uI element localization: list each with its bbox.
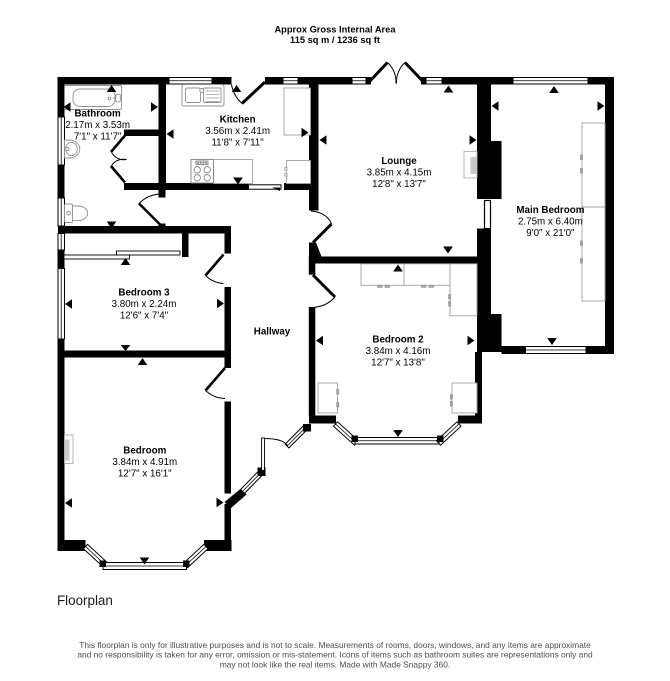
svg-text:Approx Gross Internal Area: Approx Gross Internal Area — [274, 24, 396, 34]
svg-text:9'0" x 21'0": 9'0" x 21'0" — [526, 228, 575, 239]
svg-text:12'8" x 13'7": 12'8" x 13'7" — [372, 179, 426, 190]
svg-text:2.75m x 6.40m: 2.75m x 6.40m — [518, 216, 583, 227]
svg-text:Kitchen: Kitchen — [220, 115, 256, 126]
svg-text:Lounge: Lounge — [381, 156, 417, 167]
svg-text:3.80m x 2.24m: 3.80m x 2.24m — [112, 299, 177, 310]
svg-text:Main Bedroom: Main Bedroom — [516, 205, 584, 216]
svg-text:12'7" x 13'8": 12'7" x 13'8" — [371, 358, 425, 369]
svg-text:and no responsibility is taken: and no responsibility is taken for any e… — [77, 650, 593, 660]
svg-text:3.85m x 4.15m: 3.85m x 4.15m — [367, 168, 432, 179]
svg-text:12'6" x 7'4": 12'6" x 7'4" — [120, 311, 169, 322]
svg-text:Floorplan: Floorplan — [57, 593, 113, 608]
svg-text:2.17m x 3.53m: 2.17m x 3.53m — [65, 120, 130, 131]
svg-text:3.84m x 4.16m: 3.84m x 4.16m — [366, 346, 431, 357]
svg-text:Hallway: Hallway — [254, 327, 291, 338]
svg-text:Bedroom 2: Bedroom 2 — [372, 335, 424, 346]
svg-text:Bedroom 3: Bedroom 3 — [118, 288, 170, 299]
svg-text:Bedroom: Bedroom — [123, 446, 166, 457]
svg-text:3.56m x 2.41m: 3.56m x 2.41m — [205, 126, 270, 137]
svg-text:may not look like the real ite: may not look like the real items. Made w… — [220, 659, 450, 669]
svg-text:115 sq m / 1236 sq ft: 115 sq m / 1236 sq ft — [290, 35, 380, 45]
svg-text:Bathroom: Bathroom — [74, 109, 121, 120]
svg-text:12'7" x 16'1": 12'7" x 16'1" — [118, 469, 172, 480]
svg-text:7'1" x 11'7": 7'1" x 11'7" — [74, 132, 122, 143]
svg-text:This floorplan is only for ill: This floorplan is only for illustrative … — [79, 640, 591, 650]
svg-text:11'8" x 7'11": 11'8" x 7'11" — [211, 138, 264, 149]
svg-text:3.84m x 4.91m: 3.84m x 4.91m — [112, 457, 177, 468]
